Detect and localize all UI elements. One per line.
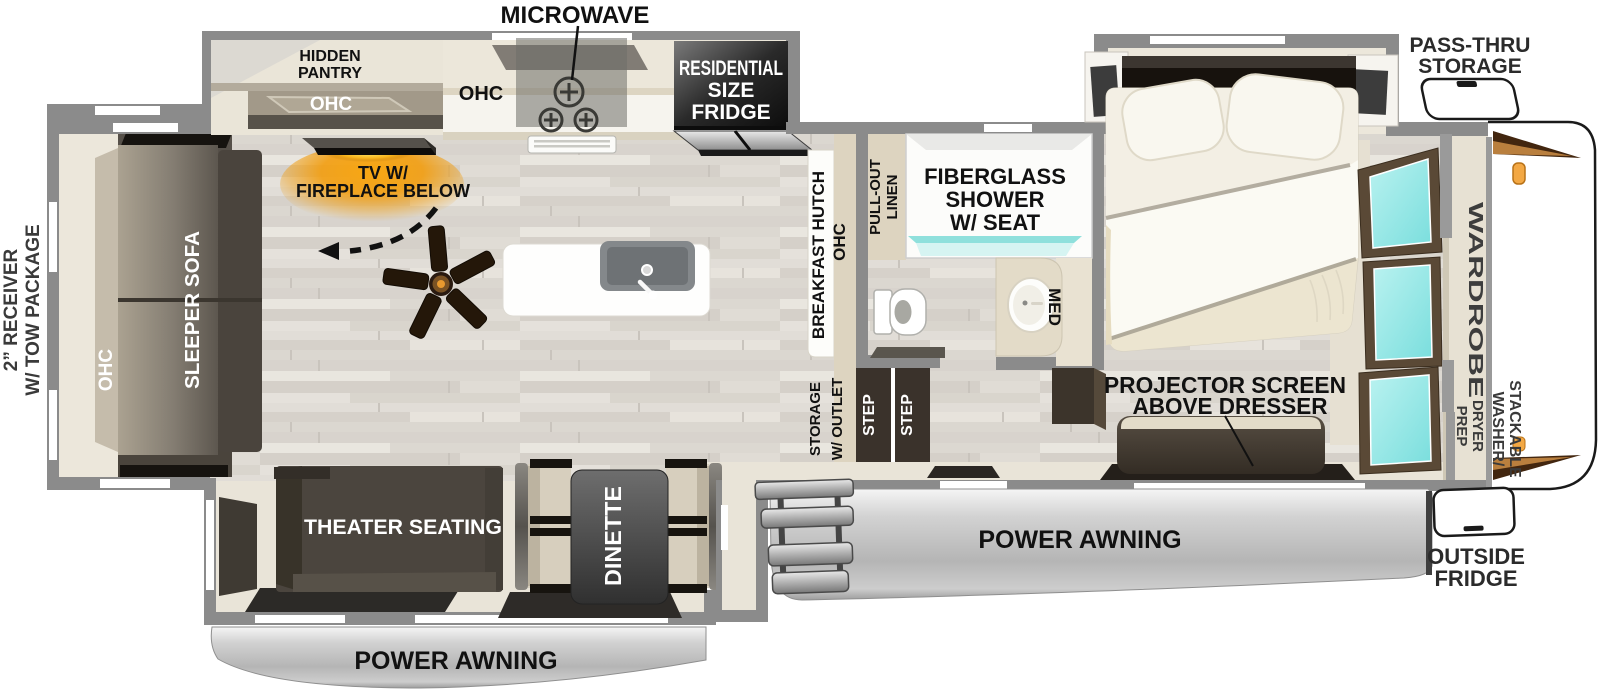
svg-text:PANTRY: PANTRY [298, 65, 362, 82]
svg-text:SHOWER: SHOWER [946, 187, 1045, 212]
svg-text:FIBERGLASS: FIBERGLASS [924, 164, 1066, 189]
svg-text:2” RECEIVER: 2” RECEIVER [1, 248, 22, 371]
svg-text:STEP: STEP [861, 394, 878, 436]
svg-text:SIZE: SIZE [708, 79, 755, 102]
svg-text:POWER AWNING: POWER AWNING [978, 526, 1181, 554]
svg-text:OHC: OHC [459, 83, 503, 105]
svg-text:RESIDENTIAL: RESIDENTIAL [679, 57, 783, 80]
svg-text:PASS-THRU: PASS-THRU [1410, 34, 1531, 57]
svg-text:W/ OUTLET: W/ OUTLET [829, 378, 846, 461]
svg-text:FRIDGE: FRIDGE [1434, 566, 1517, 591]
svg-text:BREAKFAST HUTCH: BREAKFAST HUTCH [809, 171, 828, 339]
svg-text:DRYER: DRYER [1469, 400, 1486, 452]
svg-text:POWER AWNING: POWER AWNING [354, 647, 557, 675]
svg-text:TV W/: TV W/ [358, 163, 408, 183]
svg-text:OHC: OHC [96, 349, 117, 392]
svg-text:W/ TOW PACKAGE: W/ TOW PACKAGE [23, 224, 44, 395]
svg-text:STORAGE: STORAGE [1418, 55, 1521, 78]
svg-text:STEP: STEP [899, 394, 916, 436]
svg-text:HIDDEN: HIDDEN [299, 48, 360, 65]
svg-text:MED: MED [1045, 288, 1064, 326]
svg-text:SLEEPER SOFA: SLEEPER SOFA [182, 231, 204, 389]
svg-text:STORAGE: STORAGE [807, 382, 824, 456]
svg-text:THEATER SEATING: THEATER SEATING [304, 516, 502, 539]
svg-text:W/ SEAT: W/ SEAT [950, 210, 1041, 235]
svg-text:OHC: OHC [830, 223, 849, 261]
svg-text:WASHER/: WASHER/ [1489, 392, 1506, 467]
svg-text:LINEN: LINEN [884, 175, 901, 220]
svg-text:WARDROBE: WARDROBE [1464, 202, 1486, 398]
svg-text:ABOVE DRESSER: ABOVE DRESSER [1133, 393, 1328, 419]
svg-text:MICROWAVE: MICROWAVE [501, 2, 650, 29]
svg-text:FRIDGE: FRIDGE [691, 101, 770, 124]
svg-text:PULL-OUT: PULL-OUT [867, 159, 884, 235]
svg-text:FIREPLACE BELOW: FIREPLACE BELOW [296, 181, 470, 201]
svg-text:STACKABLE: STACKABLE [1506, 380, 1523, 478]
svg-text:DINETTE: DINETTE [600, 486, 626, 586]
svg-text:PREP: PREP [1453, 406, 1470, 447]
svg-text:OHC: OHC [310, 94, 353, 115]
